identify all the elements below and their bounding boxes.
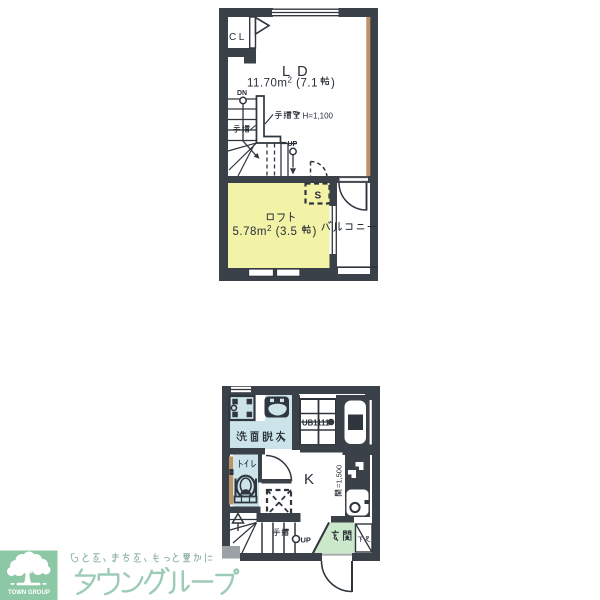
svg-text:TOWN GROUP: TOWN GROUP: [8, 590, 50, 596]
svg-text:DN: DN: [237, 90, 247, 97]
svg-text:S: S: [315, 191, 322, 202]
svg-text:K: K: [304, 471, 314, 488]
svg-text:CL: CL: [229, 32, 247, 43]
svg-text:H=1,100: H=1,100: [303, 112, 334, 121]
svg-text:UP: UP: [288, 141, 298, 148]
svg-text:5.78m2 (3.5: 5.78m2 (3.5: [233, 224, 298, 238]
svg-text:UB1111: UB1111: [302, 418, 330, 427]
svg-text:): ): [331, 78, 335, 90]
svg-text:UP: UP: [301, 536, 311, 545]
svg-text:=1,500: =1,500: [335, 465, 344, 488]
svg-text:): ): [313, 226, 317, 238]
svg-text:11.70m2 (7.1: 11.70m2 (7.1: [247, 76, 318, 90]
